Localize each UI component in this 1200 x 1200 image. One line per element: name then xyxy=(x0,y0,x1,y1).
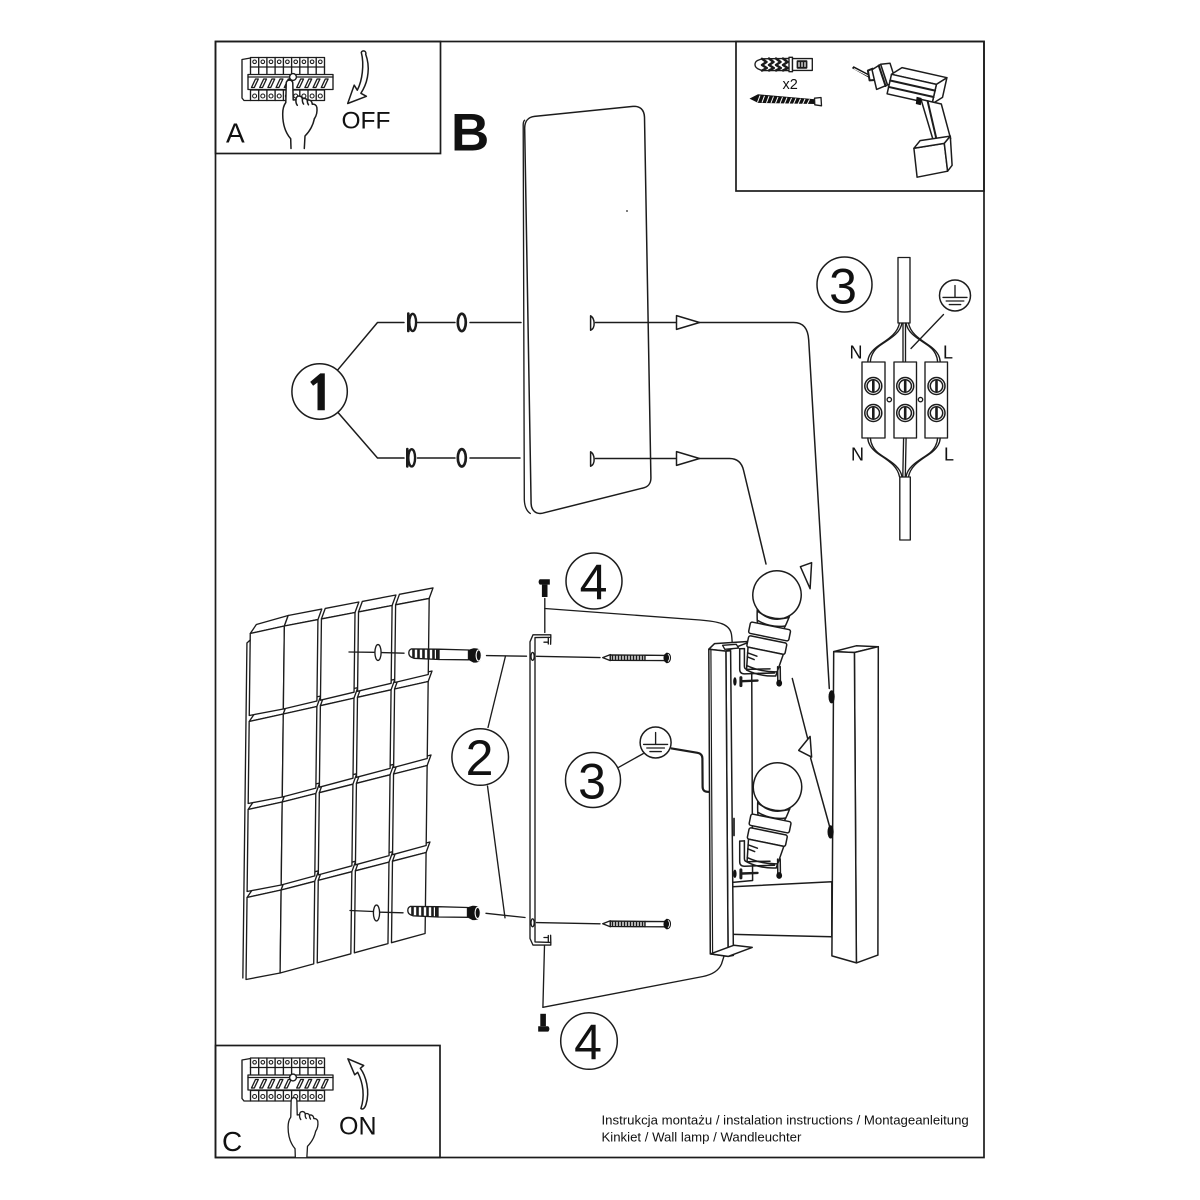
svg-text:3: 3 xyxy=(829,259,857,315)
svg-text:ON: ON xyxy=(339,1113,377,1141)
svg-text:Instrukcja montażu / instalati: Instrukcja montażu / instalation instruc… xyxy=(602,1113,969,1128)
svg-text:N: N xyxy=(851,445,864,465)
svg-text:OFF: OFF xyxy=(342,108,391,135)
svg-text:C: C xyxy=(222,1126,242,1157)
svg-text:A: A xyxy=(226,118,245,149)
svg-text:N: N xyxy=(850,343,863,363)
svg-text:2: 2 xyxy=(466,730,494,786)
svg-text:L: L xyxy=(943,343,953,363)
svg-text:Kinkiet / Wall lamp / Wandleuc: Kinkiet / Wall lamp / Wandleuchter xyxy=(602,1130,802,1145)
svg-text:3: 3 xyxy=(578,754,606,810)
svg-text:4: 4 xyxy=(580,555,608,611)
svg-text:x2: x2 xyxy=(783,77,798,93)
svg-text:B: B xyxy=(451,104,489,163)
svg-text:L: L xyxy=(944,445,954,465)
svg-text:4: 4 xyxy=(574,1015,602,1071)
